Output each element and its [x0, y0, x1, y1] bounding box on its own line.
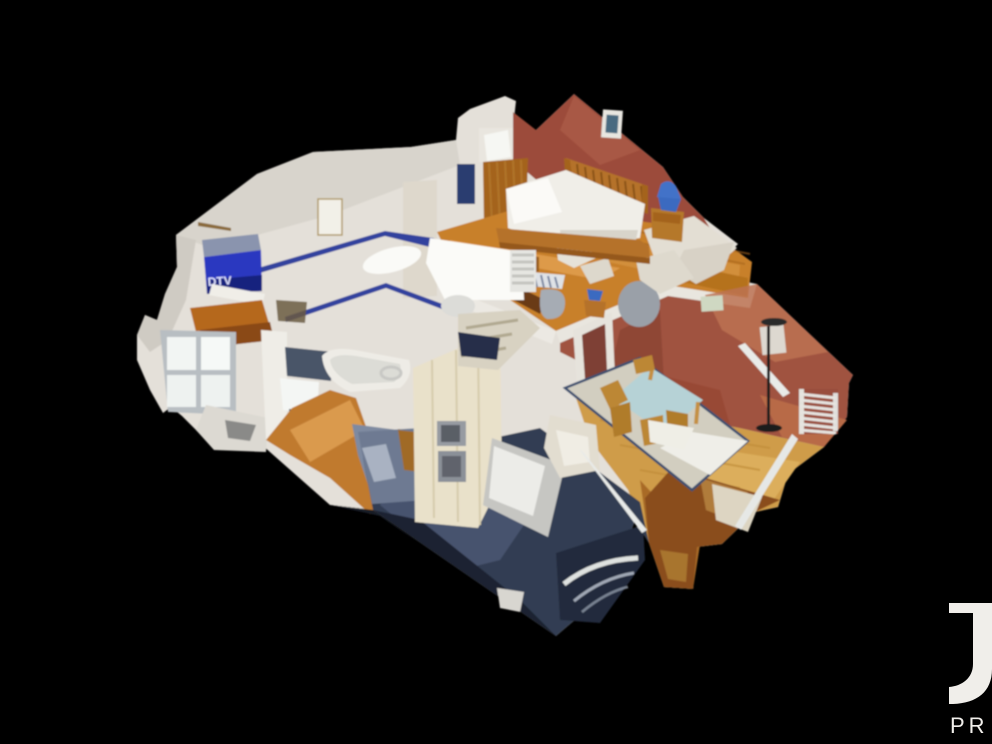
svg-text:PR: PR — [950, 713, 989, 738]
